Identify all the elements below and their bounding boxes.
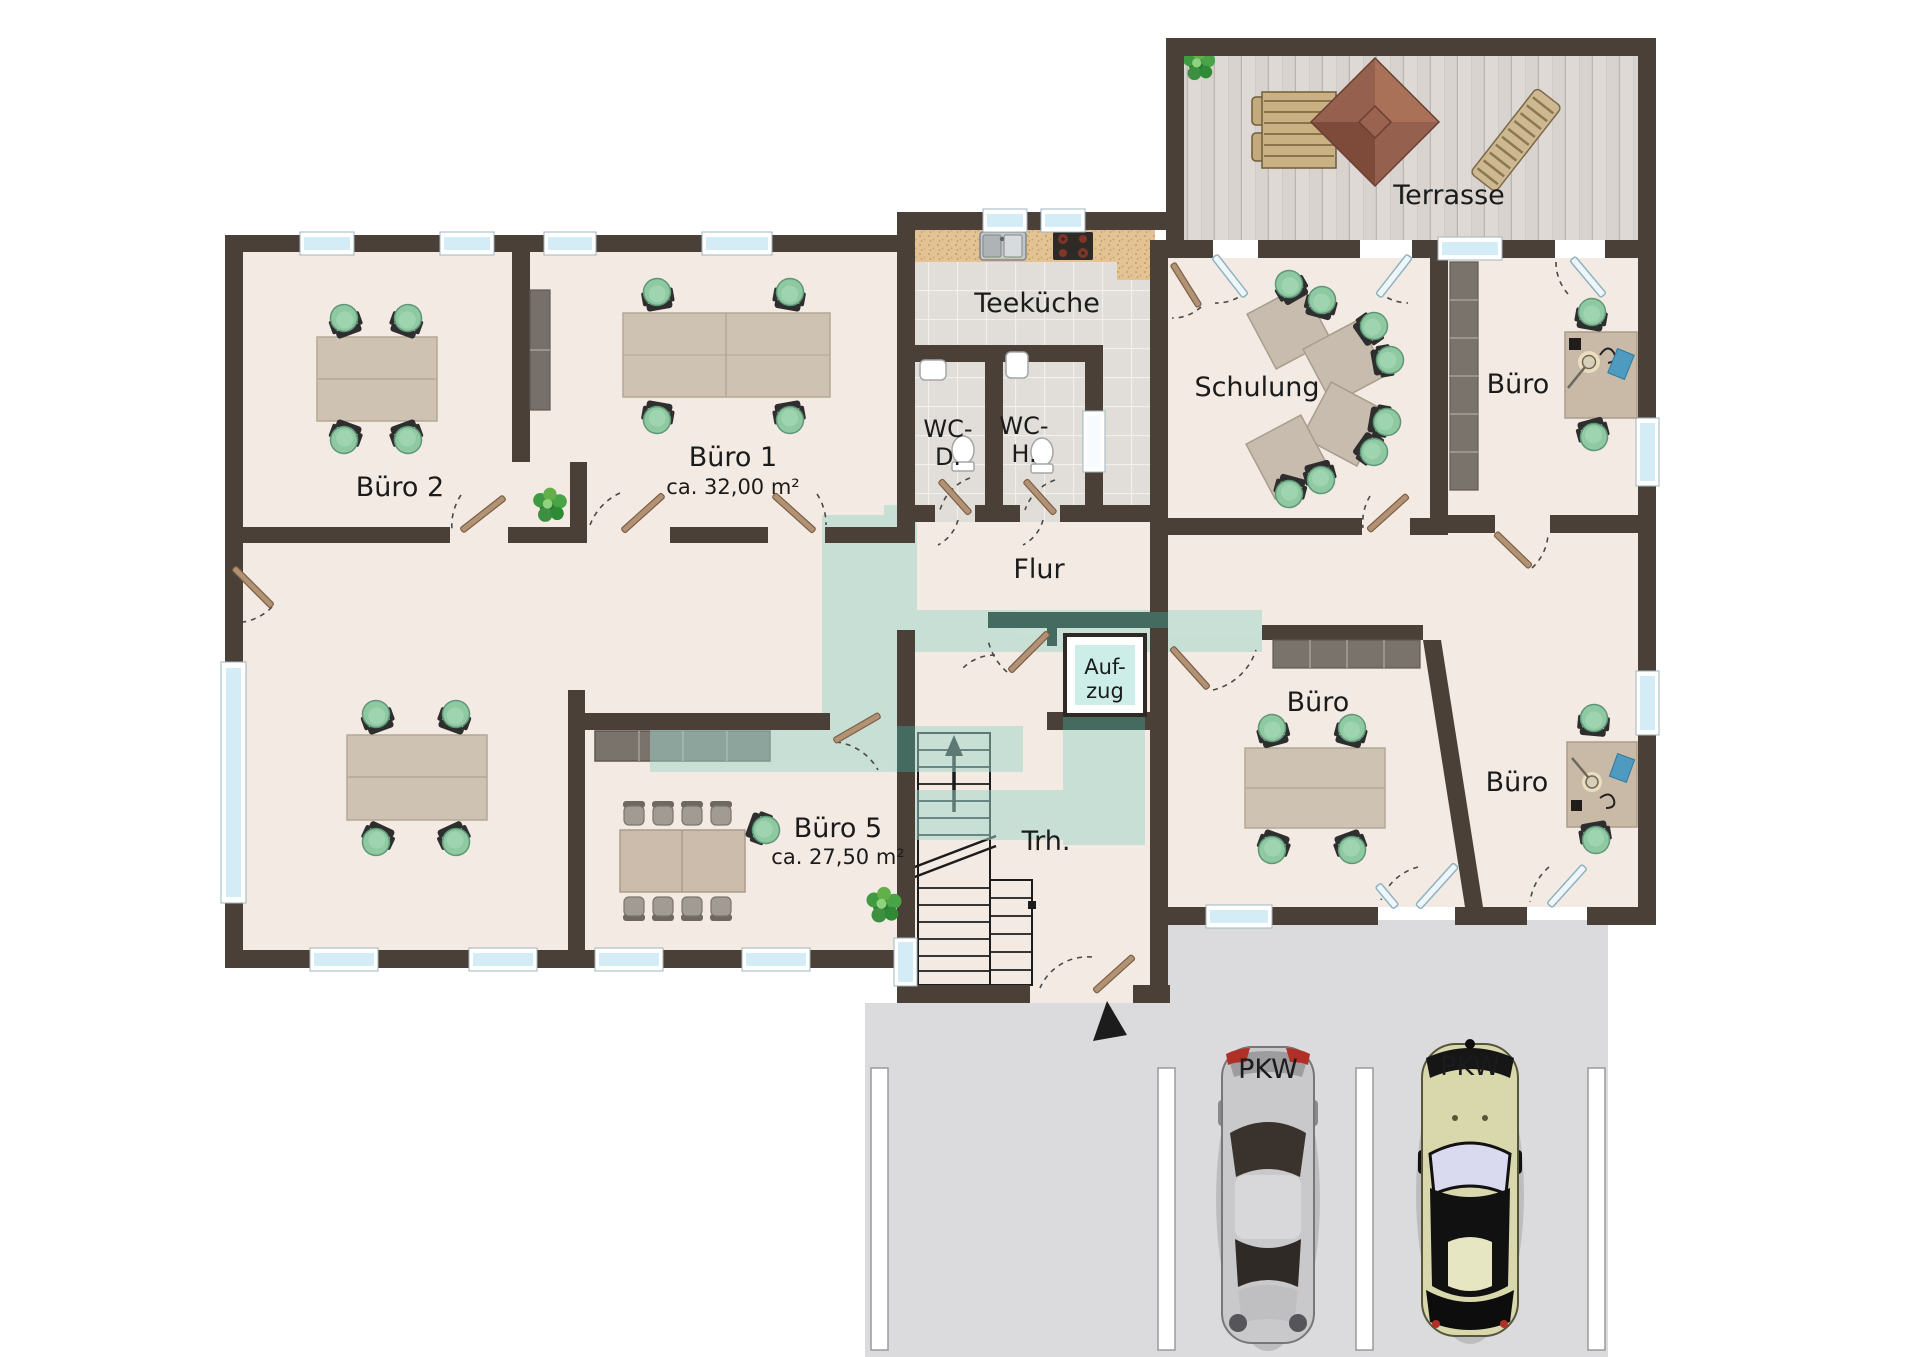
- car-silver: [1216, 1047, 1320, 1351]
- wc-h-label-line2: H.: [1011, 440, 1036, 468]
- kitchen-stove-icon: [1053, 232, 1093, 260]
- car-khaki: [1416, 1039, 1524, 1344]
- buero-2-label: Büro 2: [356, 472, 444, 503]
- wc-h-sink-icon: [1006, 352, 1028, 378]
- schulung-label: Schulung: [1194, 372, 1319, 403]
- wc-d-label-line1: WC-: [923, 415, 972, 443]
- parking-spot-2-label: PKW: [1440, 1051, 1500, 1082]
- terrasse-label: Terrasse: [1392, 180, 1505, 211]
- aufzug-label-line1: Auf-: [1084, 655, 1126, 679]
- buero-oben-rechts-label: Büro: [1487, 369, 1550, 400]
- flur-label: Flur: [1013, 554, 1065, 585]
- wc-d-label-line2: D.: [935, 443, 961, 471]
- teekueche-label: Teeküche: [973, 288, 1100, 319]
- treppenhaus-label: Trh.: [1021, 826, 1071, 857]
- buero-1-label: Büro 1: [689, 442, 777, 473]
- buero-5-label: Büro 5: [794, 813, 882, 844]
- kitchen-sink-icon: [980, 232, 1026, 260]
- elevator-aufzug: Auf- zug: [1065, 635, 1145, 715]
- buero-5-area-label: ca. 27,50 m²: [771, 845, 904, 869]
- wc-d-sink-icon: [920, 360, 946, 380]
- parking-spot-1-label: PKW: [1238, 1054, 1298, 1085]
- buero-1-area-label: ca. 32,00 m²: [666, 475, 799, 499]
- aufzug-label-line2: zug: [1086, 679, 1124, 703]
- floor-plan-svg: PKW PKW: [0, 0, 1920, 1357]
- floor-plan-page: PKW PKW: [0, 0, 1920, 1357]
- buero-unten-rechts-label: Büro: [1486, 767, 1549, 798]
- schrank-cabinets: [1450, 262, 1478, 490]
- buero-mitte-label: Büro: [1287, 687, 1350, 718]
- room-terrasse: Terrasse: [1166, 38, 1656, 240]
- wc-h-label-line1: WC-: [999, 412, 1048, 440]
